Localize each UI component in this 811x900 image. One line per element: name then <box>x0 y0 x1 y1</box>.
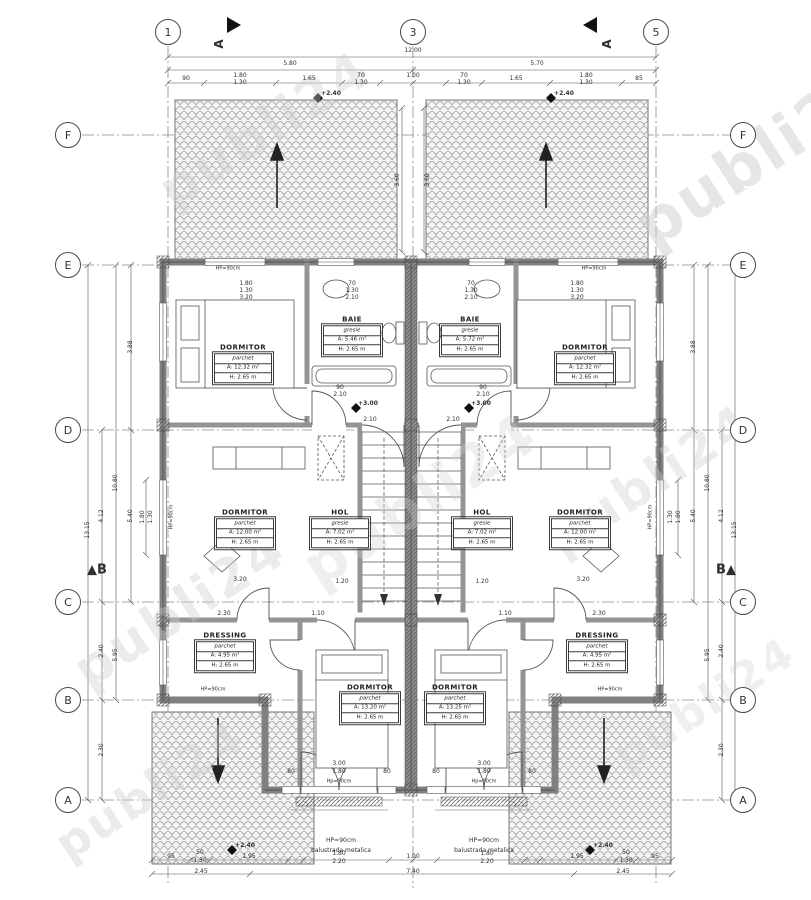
balcony-railing <box>290 797 533 810</box>
section-marker-flags <box>227 17 597 33</box>
floorplan-canvas: publi24publi24publi24publi24publi24publi… <box>0 0 811 900</box>
floor-plan-drawing <box>0 0 811 900</box>
